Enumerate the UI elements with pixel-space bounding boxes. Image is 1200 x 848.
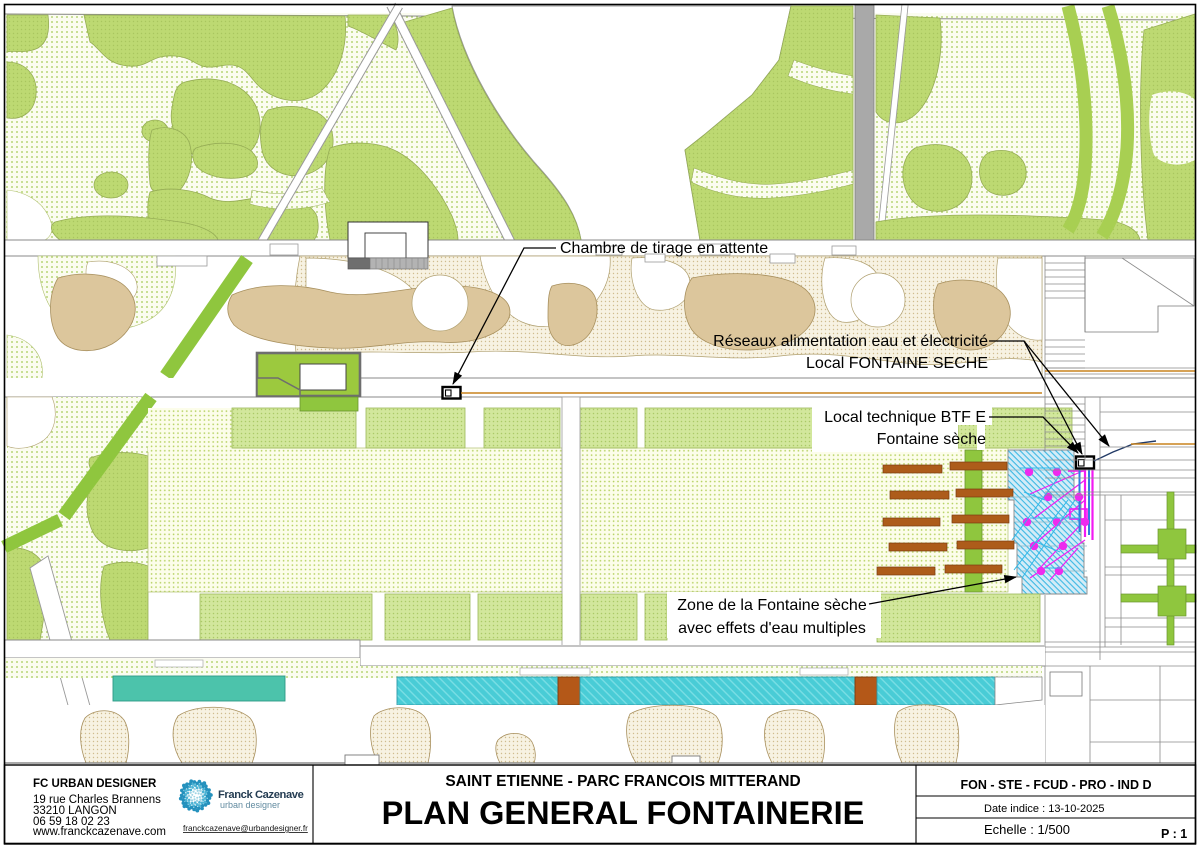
svg-text:Local technique BTF E: Local technique BTF E xyxy=(824,409,986,426)
svg-text:FON - STE - FCUD - PRO - IND D: FON - STE - FCUD - PRO - IND D xyxy=(961,778,1152,792)
svg-text:urban designer: urban designer xyxy=(220,800,280,810)
svg-text:Chambre de tirage en attente: Chambre de tirage en attente xyxy=(560,240,768,257)
svg-text:Fontaine sèche: Fontaine sèche xyxy=(877,431,987,448)
svg-text:Zone de la Fontaine sèche: Zone de la Fontaine sèche xyxy=(677,597,867,614)
svg-text:FC URBAN DESIGNER: FC URBAN DESIGNER xyxy=(33,778,157,790)
svg-text:Réseaux alimentation eau et él: Réseaux alimentation eau et électricité xyxy=(713,333,988,350)
svg-text:PLAN GENERAL FONTAINERIE: PLAN GENERAL FONTAINERIE xyxy=(382,795,865,831)
svg-text:Echelle : 1/500: Echelle : 1/500 xyxy=(984,822,1070,837)
svg-text:SAINT ETIENNE - PARC FRANCOIS: SAINT ETIENNE - PARC FRANCOIS MITTERAND xyxy=(445,773,800,790)
svg-text:avec effets d'eau multiples: avec effets d'eau multiples xyxy=(678,620,866,637)
svg-text:Local FONTAINE SECHE: Local FONTAINE SECHE xyxy=(806,355,988,372)
svg-text:Date indice : 13-10-2025: Date indice : 13-10-2025 xyxy=(984,803,1104,815)
svg-text:P : 1: P : 1 xyxy=(1161,827,1187,841)
svg-text:www.franckcazenave.com: www.franckcazenave.com xyxy=(32,826,166,838)
svg-text:franckcazenave@urbandesigner.f: franckcazenave@urbandesigner.fr xyxy=(183,824,308,833)
